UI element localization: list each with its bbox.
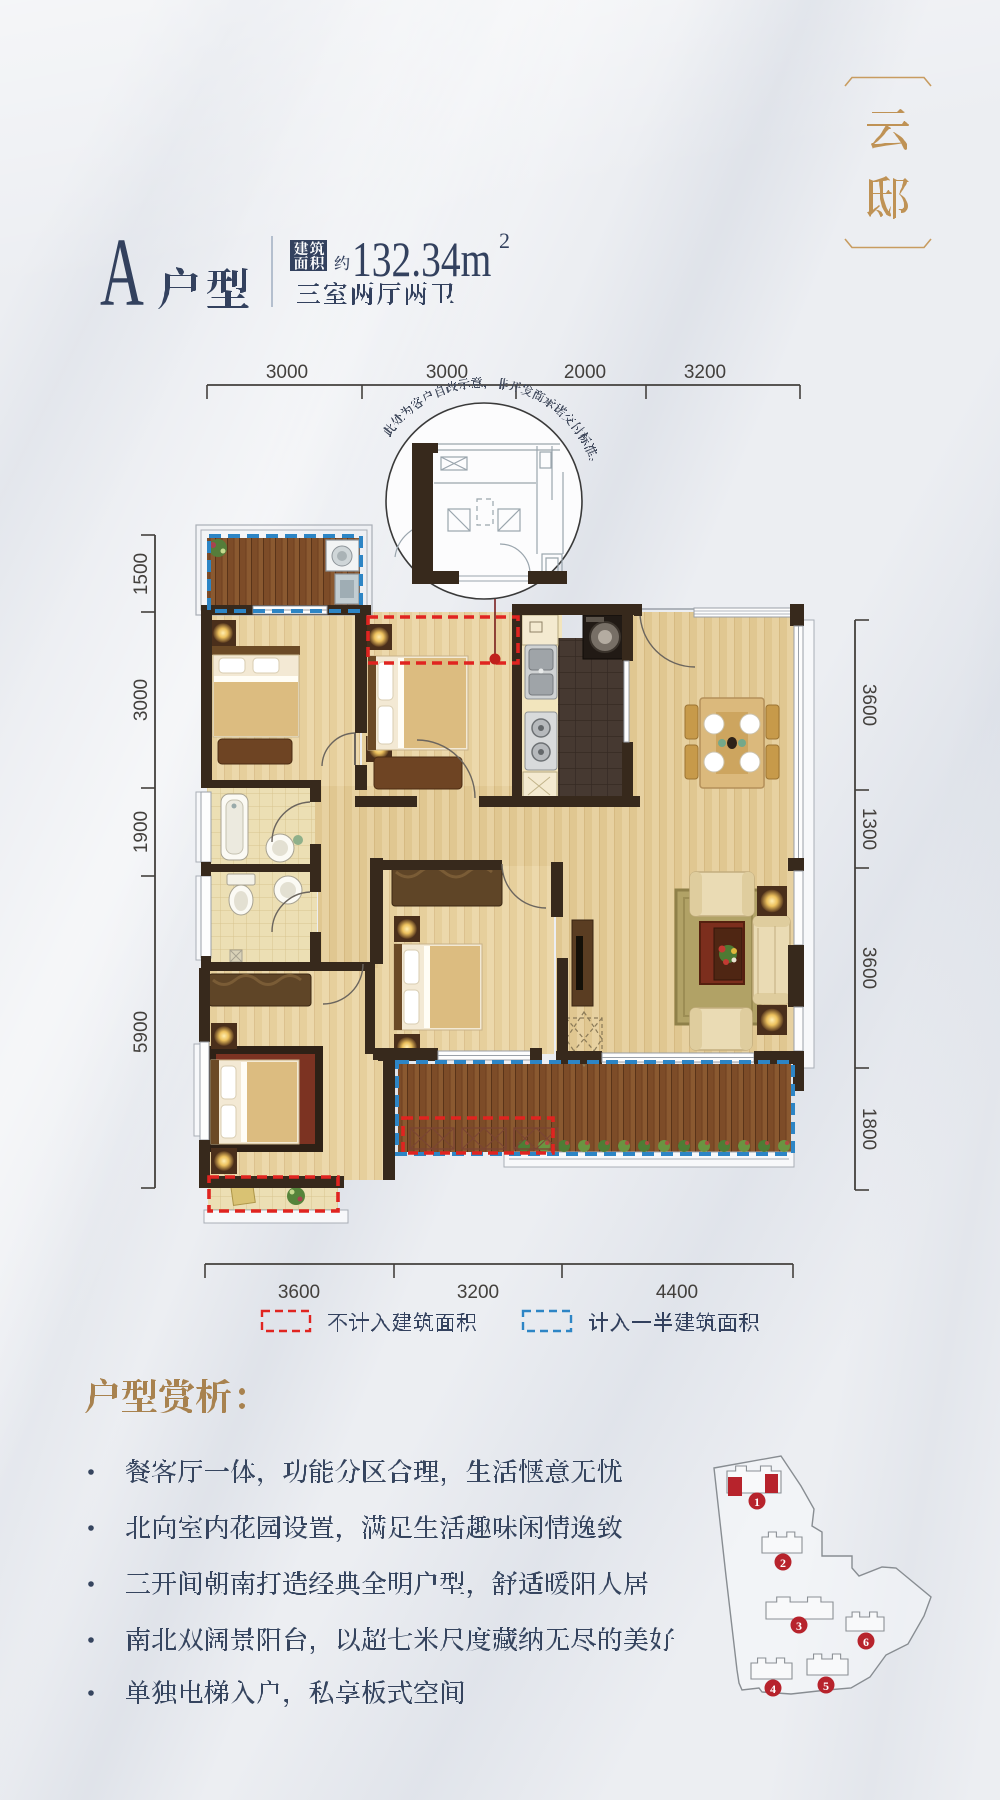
svg-text:4400: 4400 <box>656 1282 698 1303</box>
svg-text:A: A <box>100 217 144 326</box>
svg-text:3600: 3600 <box>858 947 879 989</box>
svg-text:5900: 5900 <box>131 1011 152 1053</box>
svg-text:1800: 1800 <box>858 1108 879 1150</box>
svg-text:3200: 3200 <box>684 362 726 383</box>
svg-text:2: 2 <box>499 228 510 253</box>
svg-text:132.34m: 132.34m <box>352 232 491 287</box>
svg-text:5: 5 <box>823 1679 829 1693</box>
svg-text:6: 6 <box>863 1635 869 1649</box>
svg-text:1900: 1900 <box>131 811 152 853</box>
svg-text:3600: 3600 <box>278 1282 320 1303</box>
svg-text:1: 1 <box>754 1495 760 1509</box>
svg-text:2: 2 <box>780 1556 786 1570</box>
svg-text:1500: 1500 <box>131 553 152 595</box>
svg-text:3200: 3200 <box>457 1282 499 1303</box>
svg-text:4: 4 <box>770 1682 776 1696</box>
svg-text:3000: 3000 <box>266 362 308 383</box>
svg-text:2000: 2000 <box>564 362 606 383</box>
svg-text:3600: 3600 <box>858 684 879 726</box>
svg-text:1300: 1300 <box>858 808 879 850</box>
svg-text:3000: 3000 <box>131 679 152 721</box>
svg-text:3: 3 <box>796 1619 802 1633</box>
